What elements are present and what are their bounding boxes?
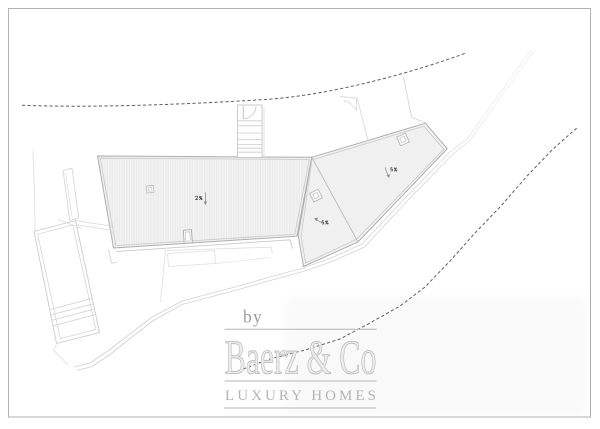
svg-text:Baerz & Co: Baerz & Co (225, 330, 377, 385)
svg-text:by: by (243, 307, 263, 327)
